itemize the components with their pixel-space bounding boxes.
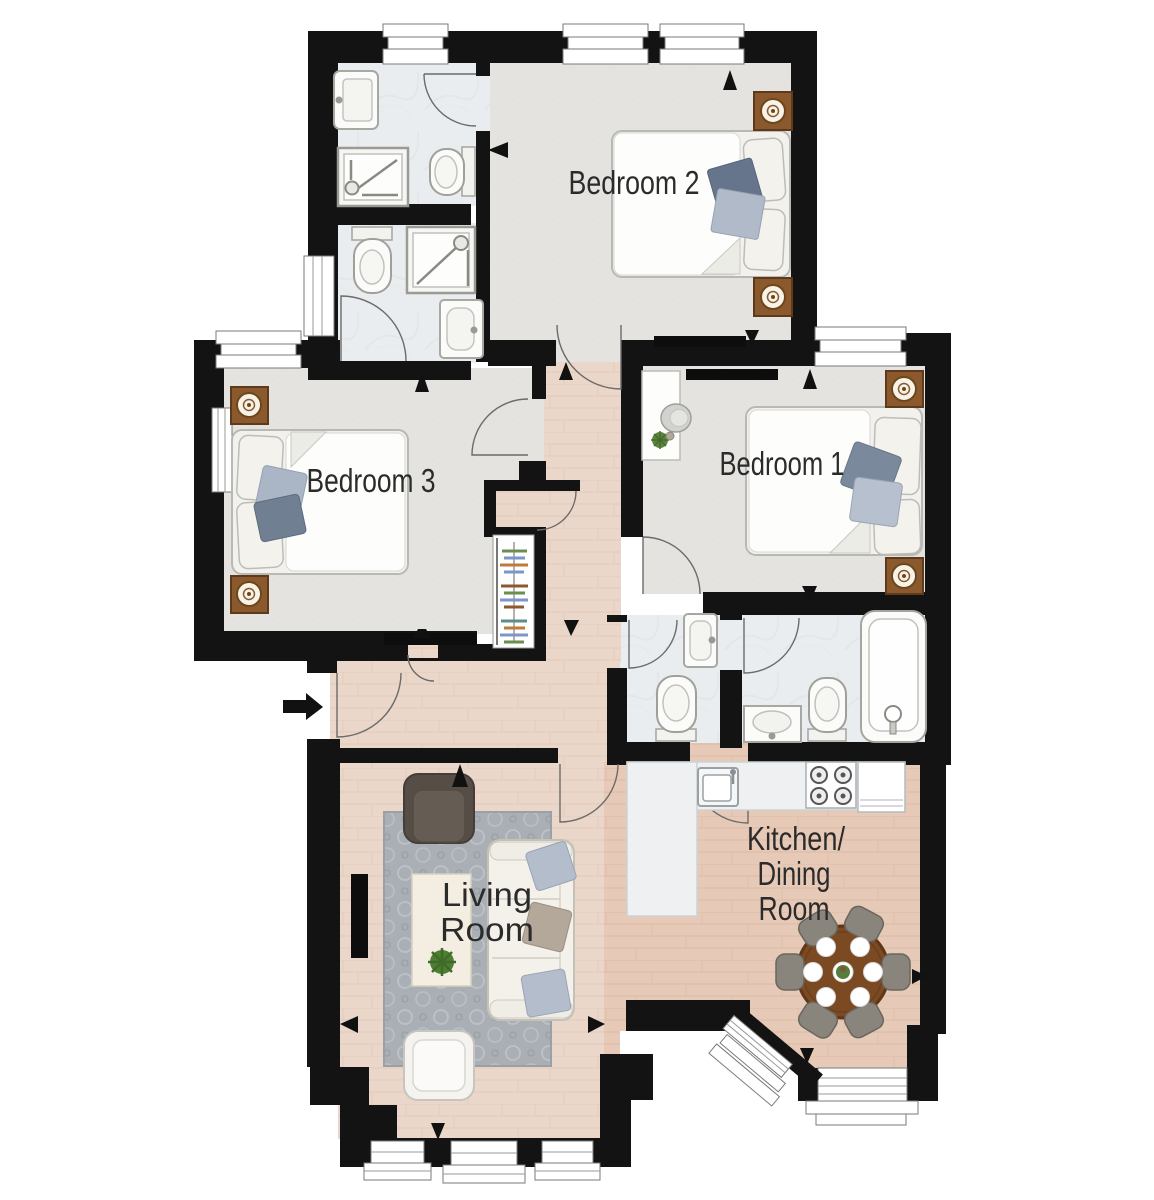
svg-text:Room: Room	[759, 890, 830, 927]
svg-text:Bedroom 2: Bedroom 2	[569, 164, 700, 201]
svg-text:Living: Living	[442, 876, 532, 913]
svg-text:Kitchen/: Kitchen/	[747, 820, 846, 857]
svg-text:Room: Room	[440, 911, 534, 948]
svg-text:Bedroom 3: Bedroom 3	[307, 462, 436, 499]
svg-text:Dining: Dining	[758, 855, 831, 892]
svg-text:Bedroom 1: Bedroom 1	[720, 445, 845, 482]
